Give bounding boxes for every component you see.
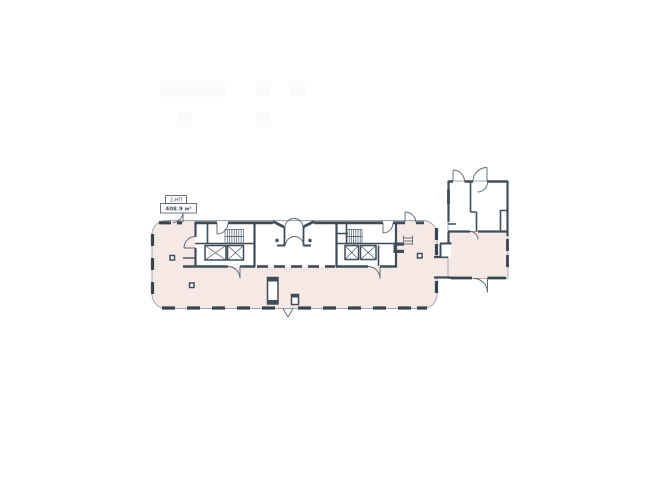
column-square (190, 283, 195, 288)
unit-area-text: 408.9 м² (165, 206, 192, 213)
ghost-rect (177, 112, 192, 127)
unit-label-text: 2-НП (170, 198, 182, 204)
ghost-shapes (160, 81, 305, 127)
floor-plan-drawing: 2-НП 408.9 м² (0, 0, 653, 489)
door-south-exit (283, 309, 293, 318)
column-dot (308, 239, 311, 242)
ghost-rect (256, 81, 271, 96)
ghost-rect (160, 81, 225, 97)
column-square (418, 254, 423, 259)
ghost-rect (256, 112, 271, 127)
annex-upper-rooms (448, 181, 508, 232)
annex-door-ne (473, 168, 487, 182)
annex-building (448, 181, 508, 279)
annex-door-south (474, 279, 488, 293)
neck-alcove (441, 245, 451, 257)
ghost-rect (289, 81, 305, 96)
column-dot (275, 239, 278, 242)
floor-plan-page: 2-НП 408.9 м² (0, 0, 653, 489)
unit-label-box: 2-НП 408.9 м² (161, 196, 197, 214)
connector-corridor (436, 258, 449, 278)
annex-door-nw (453, 170, 465, 182)
column-square (170, 256, 175, 261)
